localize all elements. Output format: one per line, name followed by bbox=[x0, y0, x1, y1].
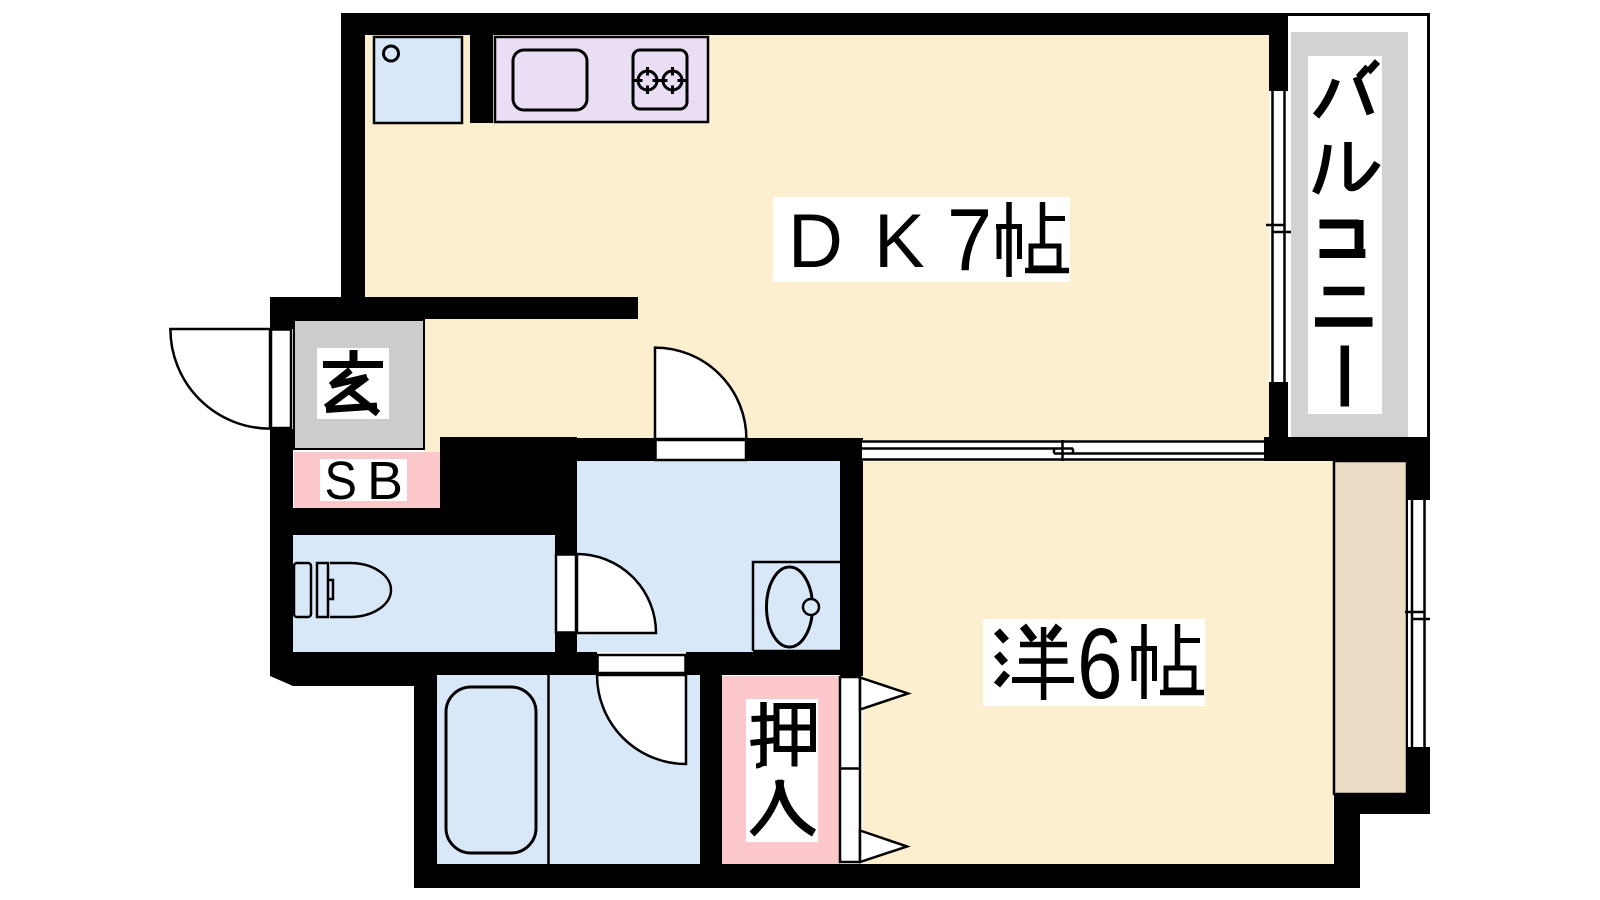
svg-text:B: B bbox=[367, 451, 403, 511]
svg-text:S: S bbox=[325, 450, 357, 511]
svg-text:K: K bbox=[874, 199, 925, 284]
svg-text:7: 7 bbox=[947, 190, 992, 289]
svg-text:D: D bbox=[788, 199, 843, 284]
svg-text:6: 6 bbox=[1077, 608, 1123, 720]
